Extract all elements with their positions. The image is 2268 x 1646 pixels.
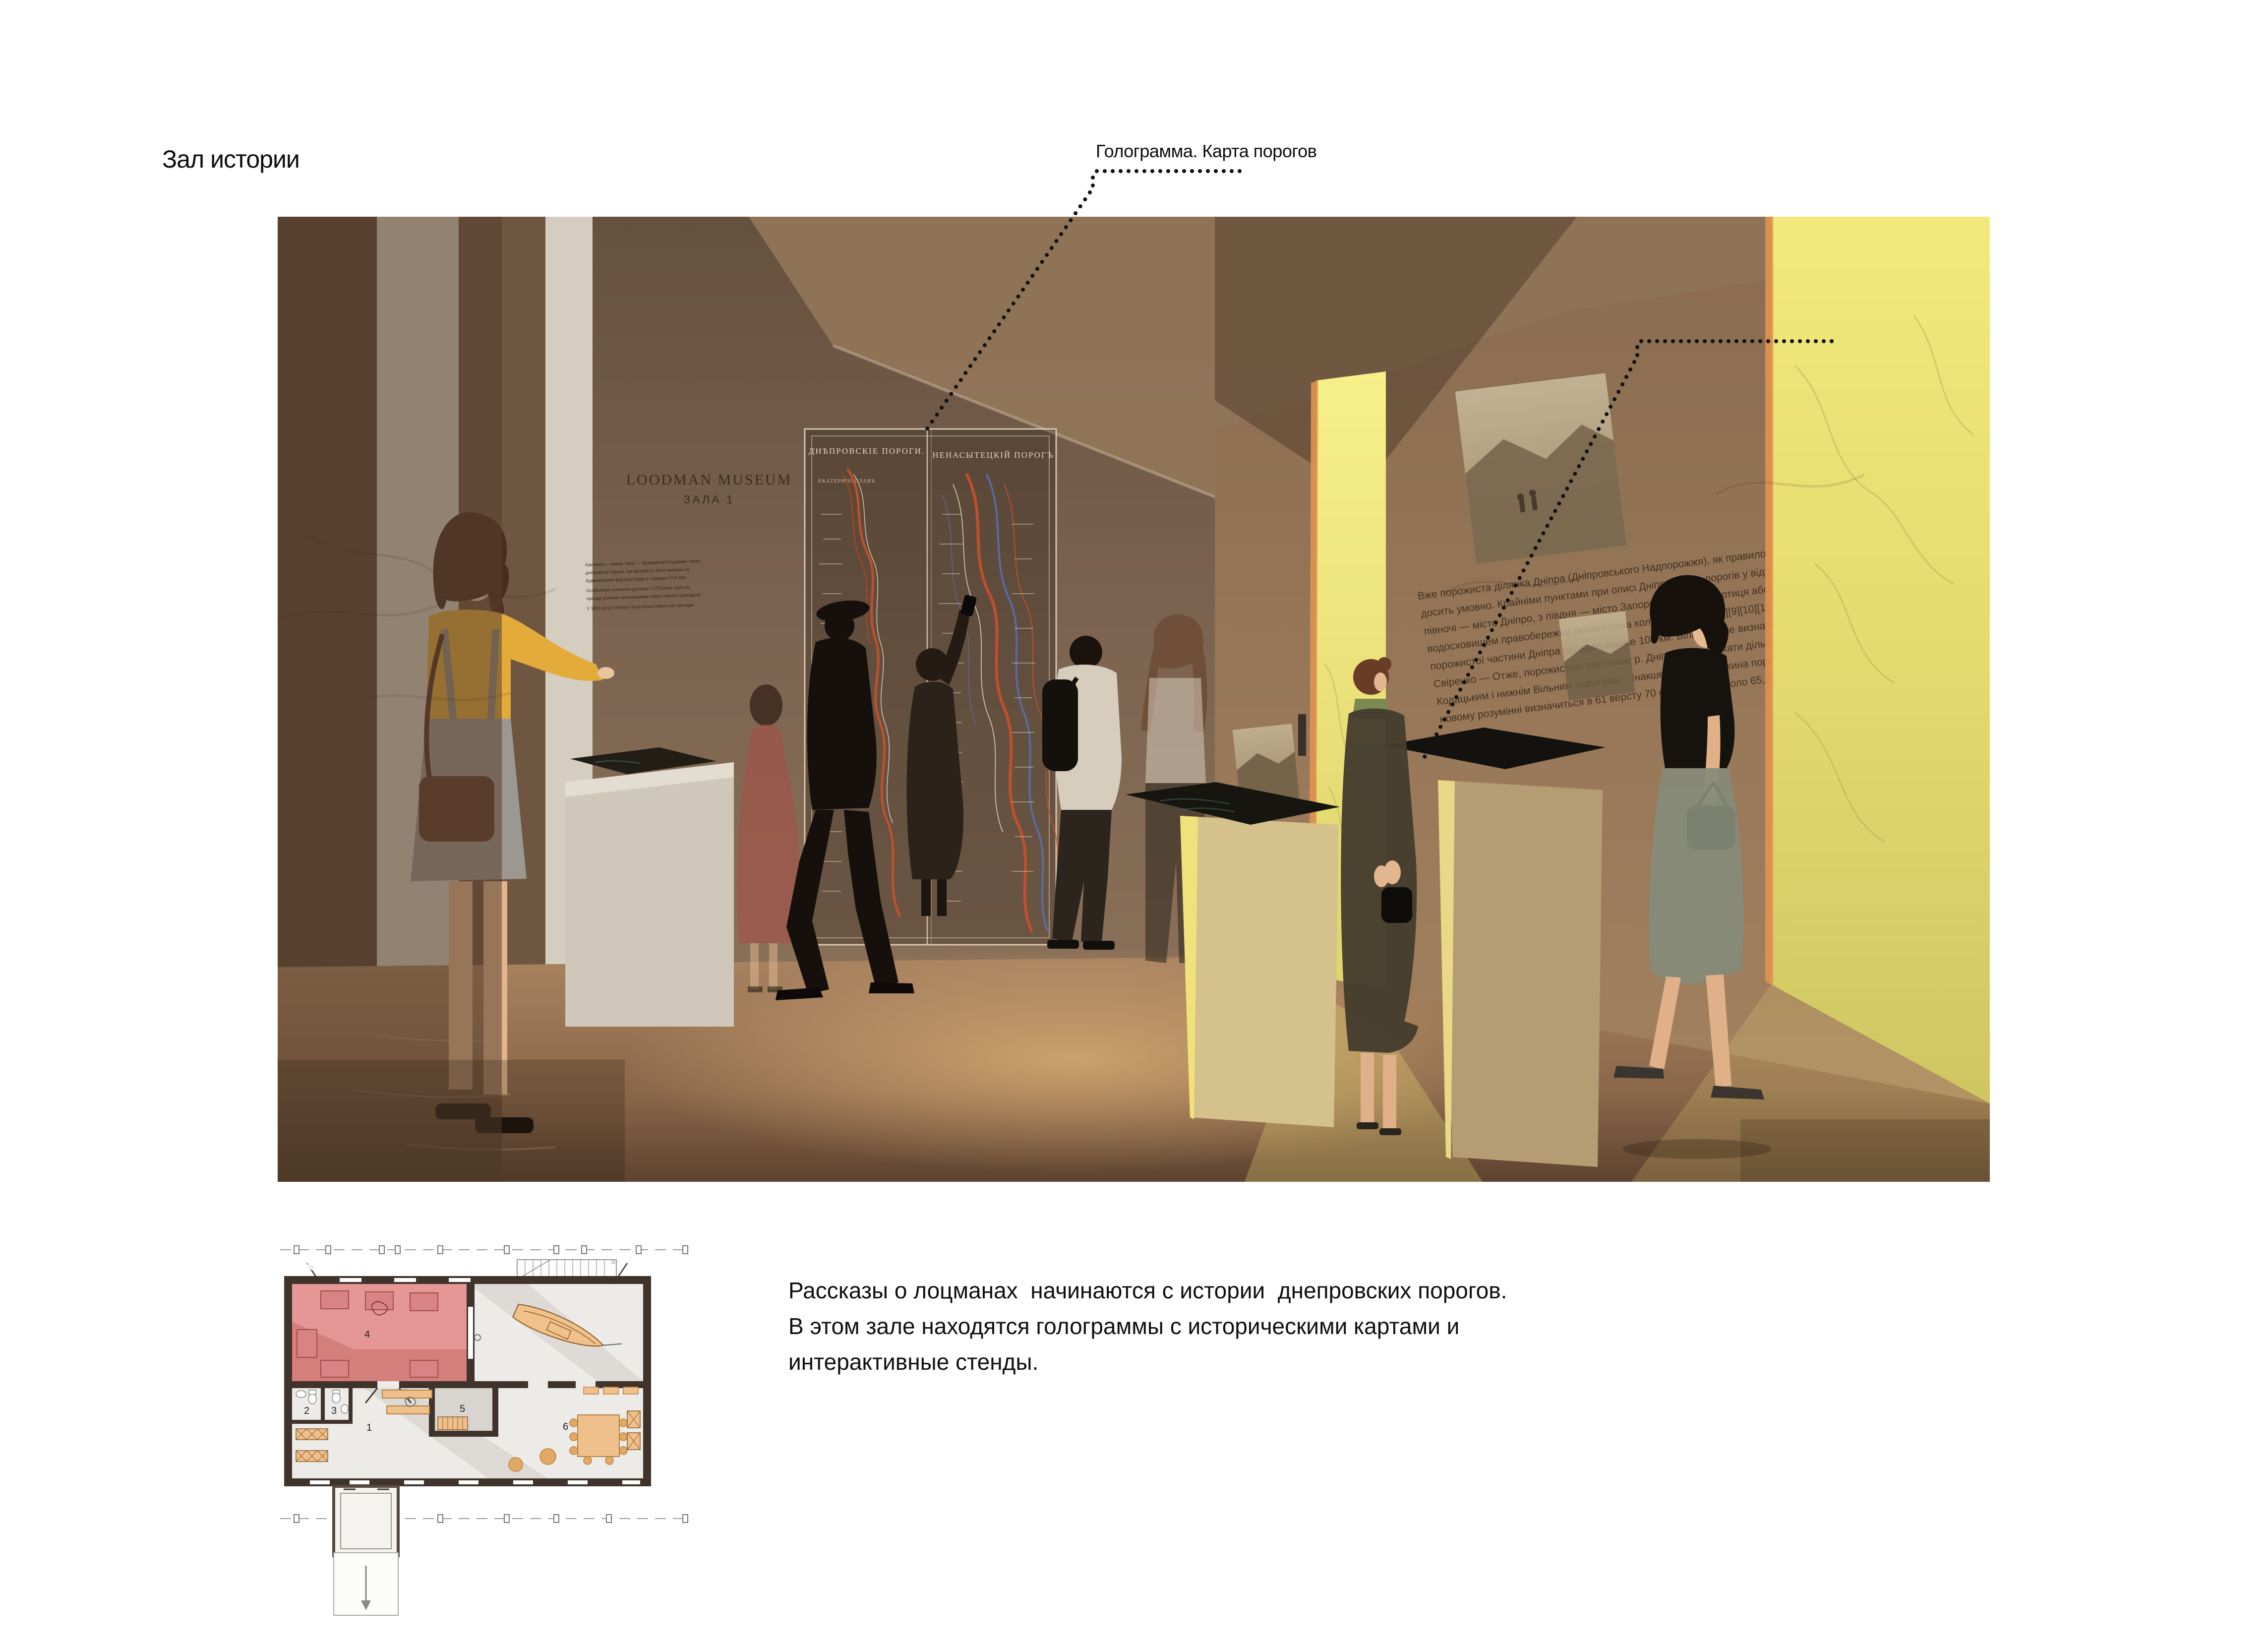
plan-label-room-6: 6	[563, 1421, 568, 1432]
description-paragraph: Рассказы о лоцманах начинаются с истории…	[788, 1273, 1507, 1380]
large-window	[1765, 217, 1990, 1103]
description-line: В этом зале находятся голограммы с истор…	[788, 1308, 1507, 1344]
plan-label-room-4: 4	[364, 1329, 370, 1340]
plan-hologram-slot	[468, 1307, 473, 1359]
plan-label-room-3: 3	[331, 1405, 337, 1416]
vignette-right	[1740, 1119, 1990, 1182]
description-line: Рассказы о лоцманах начинаются с истории…	[788, 1273, 1507, 1308]
vignette-left	[278, 1060, 625, 1182]
plan-label-room-2: 2	[304, 1405, 309, 1416]
plan-room-history-hall	[292, 1284, 467, 1381]
plan-label-room-1: 1	[366, 1422, 372, 1433]
description-line: интерактивные стенды.	[788, 1344, 1507, 1380]
history-hall-render: LOODMAN MUSEUM ЗАЛА 1 Кам'янка — нижня т…	[278, 217, 1990, 1182]
presentation-board: Зал истории Голограмма. Карта порогов Ин…	[0, 0, 2268, 1646]
wall-sign-museum: LOODMAN MUSEUM	[626, 472, 792, 488]
wall-photo-small-right	[1559, 611, 1635, 700]
page-title: Зал истории	[162, 145, 299, 174]
map-right-title: НЕНАСЫТЕЦКІЙ ПОРОГЪ	[932, 450, 1054, 460]
callout-hologram-label: Голограмма. Карта порогов	[1096, 141, 1316, 162]
map-left-title: ДНѢПРОВСКІЕ ПОРОГИ.	[809, 446, 925, 456]
wall-photo-large	[1455, 373, 1626, 564]
display-plinth	[565, 762, 734, 1027]
wall-sign-hall: ЗАЛА 1	[683, 493, 734, 506]
plan-entrance	[334, 1486, 398, 1615]
plan-label-room-5: 5	[460, 1403, 465, 1414]
floor-plan: 1 2 3 4 5 6	[280, 1232, 692, 1624]
